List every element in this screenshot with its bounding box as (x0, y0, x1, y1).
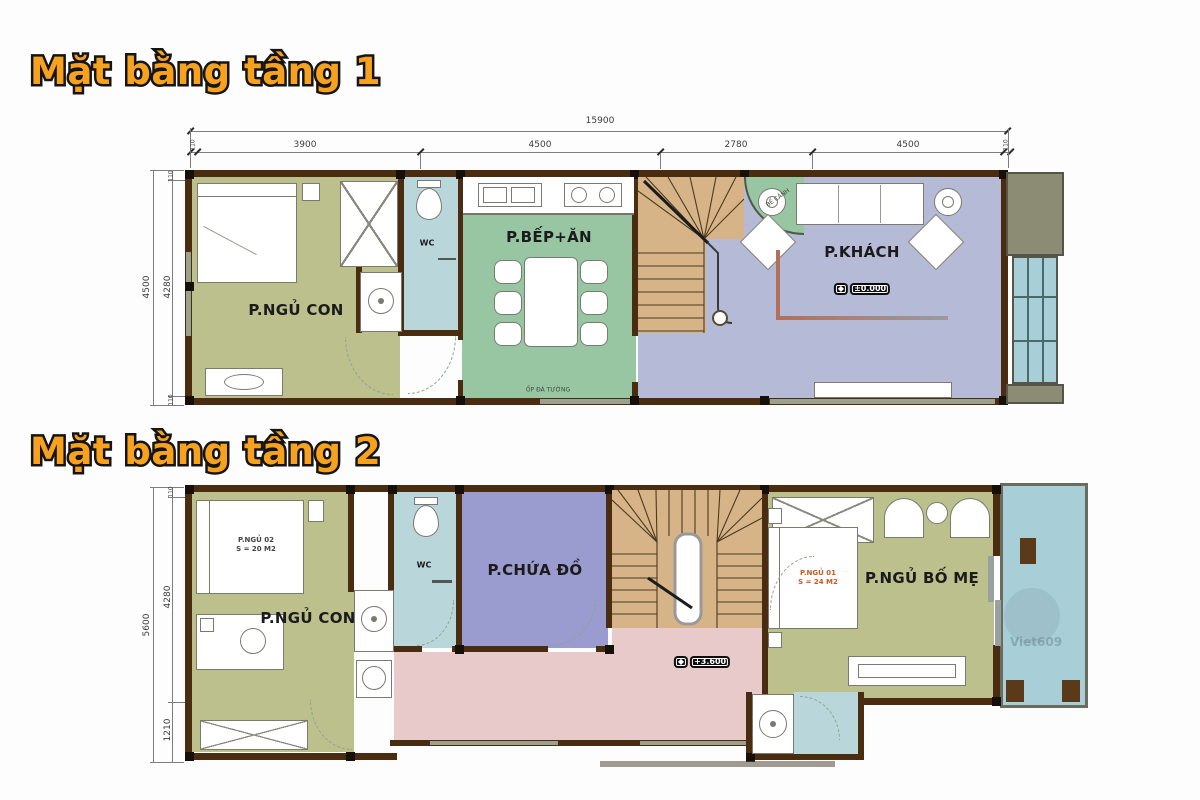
facade-block (1006, 384, 1064, 404)
stairs-plan1 (638, 177, 744, 333)
column (346, 752, 355, 761)
side-table (768, 632, 782, 648)
room-label-wc2: WC (417, 561, 432, 570)
side-table (926, 502, 948, 524)
plan1-title: Mặt bằng tầng 1 (30, 50, 381, 93)
dimension-label: 110 (168, 170, 175, 181)
level-icon: ◆ (674, 656, 688, 668)
column (760, 396, 769, 405)
dimension-label: 110 (168, 486, 175, 497)
double-bed (197, 183, 297, 283)
wall-segment (993, 645, 1000, 703)
dimension-label: 5600 (142, 614, 152, 637)
sink-bowl (483, 187, 507, 203)
bed2-name: P.NGỦ 02 (236, 536, 276, 545)
bed1-area: S = 24 M2 (798, 578, 838, 587)
wall-segment (456, 492, 462, 648)
dimension-label: 110 (1003, 139, 1010, 150)
chair (494, 260, 522, 284)
toilet-icon (413, 505, 439, 537)
dimension-line (190, 131, 1008, 132)
dimension-label: 4500 (142, 276, 152, 299)
door-mullion (1042, 258, 1044, 382)
dimension-line (150, 762, 184, 763)
column (185, 170, 194, 179)
dimension-label: 110 (190, 139, 197, 150)
dimension-line (153, 487, 154, 763)
side-table-inner (942, 196, 954, 208)
room-label-bedroom1: P.NGỦ CON (248, 301, 343, 319)
watermark-text: Viet609 (1010, 635, 1062, 649)
sink-drain (378, 298, 384, 304)
door-mullion (1027, 258, 1029, 382)
room-label-living: P.KHÁCH (824, 243, 899, 261)
sofa (796, 183, 924, 225)
nightstand (308, 500, 324, 522)
wall-segment (185, 485, 192, 760)
balcony-post (1020, 538, 1036, 564)
room-label-wc1: WC (420, 239, 435, 248)
column (456, 396, 465, 405)
balcony-post (1006, 680, 1024, 702)
wall-segment (452, 646, 548, 652)
chair (580, 260, 608, 284)
chair (494, 291, 522, 315)
facade-block (1006, 172, 1064, 256)
column (185, 752, 194, 761)
wall-segment (858, 692, 864, 760)
elevation-value: +3.600 (690, 656, 730, 668)
sliding-door-leaf (988, 556, 994, 602)
sink-drain (371, 616, 377, 622)
window-sill (430, 741, 558, 745)
window-sill (186, 252, 191, 336)
room-label-master: P.NGỦ BỐ MẸ (865, 569, 979, 587)
sink-drain (770, 721, 776, 727)
column (388, 485, 397, 494)
towel-bar (438, 258, 456, 260)
dimension-label: 2780 (725, 140, 748, 150)
stairs-plan2 (612, 490, 762, 628)
sofa-divider (880, 185, 881, 223)
chair (580, 291, 608, 315)
wall-segment (348, 492, 354, 592)
door-arc (408, 336, 456, 394)
elevation-marker-2: ◆ +3.600 (674, 656, 730, 668)
chair (580, 322, 608, 346)
door-rail (1014, 296, 1056, 298)
dimension-label: 3900 (294, 140, 317, 150)
toilet-icon (416, 188, 442, 220)
column (455, 645, 464, 654)
stove-burner (599, 187, 615, 203)
room-label-kitchen: P.BẾP+ĂN (506, 228, 592, 246)
wall-segment (858, 698, 1000, 705)
dimension-line (660, 153, 661, 169)
plan2-title: Mặt bằng tầng 2 (30, 430, 381, 473)
balcony-post (1062, 680, 1080, 702)
dimension-label: 110 (168, 394, 175, 405)
dimension-label: 1210 (163, 719, 173, 742)
dimension-label: 4280 (163, 586, 173, 609)
nightstand (302, 183, 320, 201)
desk-monitor (200, 618, 214, 632)
elevation-marker-1: ◆ ±0.000 (834, 283, 890, 295)
column (185, 396, 194, 405)
desk-chair (240, 628, 266, 654)
column (396, 170, 405, 179)
chair (494, 322, 522, 346)
rug-line (776, 316, 948, 320)
glazed-entry-door (1012, 256, 1058, 384)
bed-headboard (196, 500, 210, 594)
tv-cabinet (814, 382, 952, 398)
side-table (768, 508, 782, 524)
door-rail (1014, 340, 1056, 342)
stove-burner (571, 187, 587, 203)
washing-machine-drum (362, 666, 386, 690)
wall-segment (993, 485, 1000, 556)
dimension-label: 15900 (586, 116, 615, 126)
dimension-line (190, 152, 1010, 153)
dimension-line (812, 153, 813, 169)
wall-segment (185, 753, 397, 760)
dimension-line (420, 153, 421, 169)
bed-headboard (197, 183, 297, 197)
armchair-arch (950, 498, 990, 538)
dimension-label: 4500 (529, 140, 552, 150)
column (185, 485, 194, 494)
dressing-bowl (224, 374, 264, 390)
window-sill (640, 741, 748, 745)
shadow-strip (600, 761, 835, 767)
towel-bar (432, 580, 452, 583)
wardrobe (340, 181, 398, 267)
tv-cabinet-inner (858, 664, 956, 678)
window-sill (540, 399, 632, 404)
toilet-tank (417, 180, 441, 188)
wall-segment (746, 754, 864, 760)
rug-line (776, 250, 780, 320)
window-sill (770, 399, 995, 404)
room-label-storage: P.CHỨA ĐỒ (488, 561, 583, 579)
column (455, 485, 464, 494)
column (346, 485, 355, 494)
column (992, 485, 1001, 494)
bed2-area: S = 20 M2 (236, 545, 276, 554)
room-label-bedroom2: P.NGỦ CON (260, 609, 355, 627)
sliding-door-leaf (995, 600, 1001, 646)
column (605, 645, 614, 654)
bed1-name: P.NGỦ 01 (798, 569, 838, 578)
toilet-tank (414, 497, 438, 505)
column (630, 396, 639, 405)
kitchen-wall-note: ỐP ĐÁ TƯỜNG (526, 387, 570, 394)
dimension-label: 4280 (163, 276, 173, 299)
floor-plan-canvas: Mặt bằng tầng 1 Mặt bằng tầng 2 15900 11… (0, 0, 1200, 800)
level-icon: ◆ (834, 283, 848, 295)
elevation-value: ±0.000 (850, 283, 890, 295)
column (185, 282, 194, 291)
wardrobe (200, 720, 308, 750)
sofa-divider (838, 185, 839, 223)
dimension-line (168, 702, 186, 703)
column (992, 697, 1001, 706)
wall-segment (185, 485, 1000, 492)
dimension-line (153, 170, 154, 406)
sink-bowl (511, 187, 535, 203)
dining-table (524, 257, 578, 347)
dimension-label: 4500 (897, 140, 920, 150)
wall-segment (185, 170, 1008, 177)
armchair-arch (884, 498, 924, 538)
